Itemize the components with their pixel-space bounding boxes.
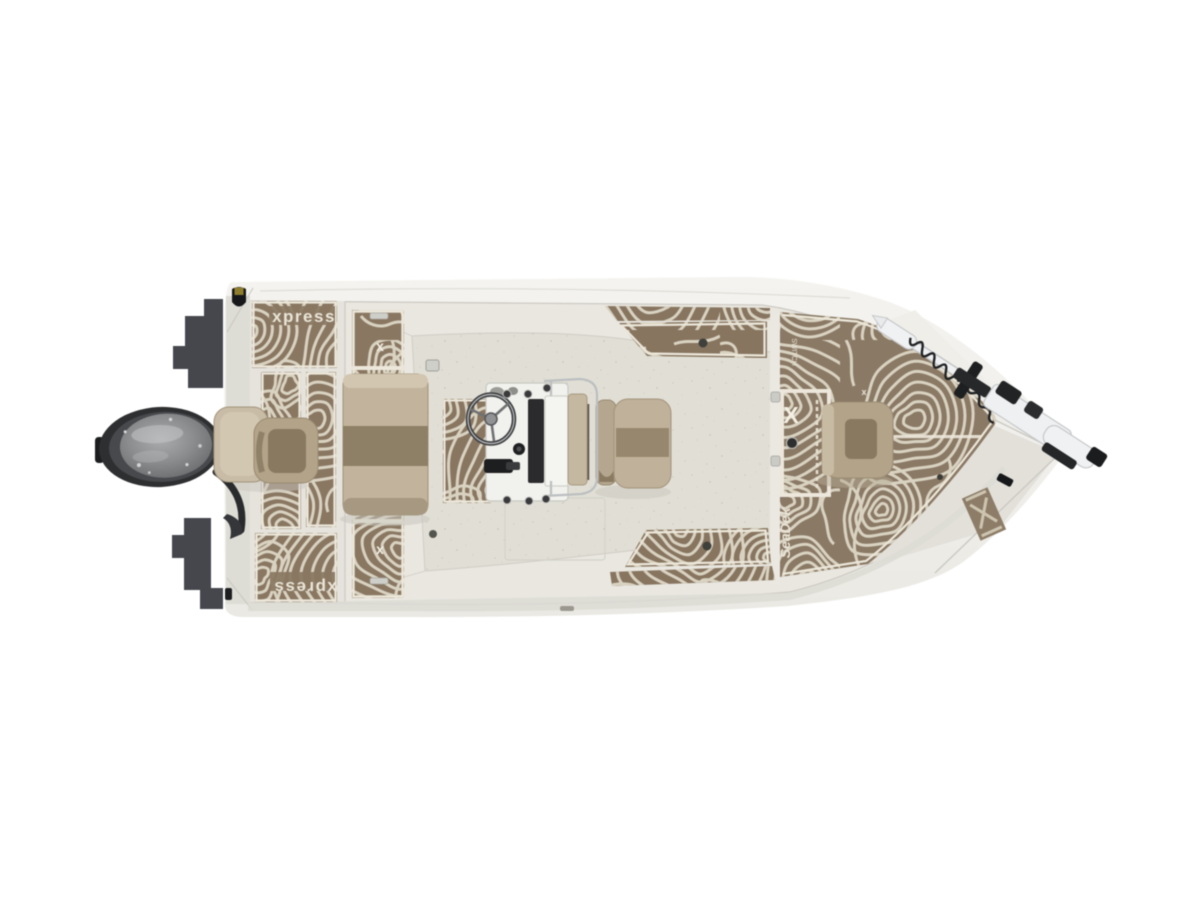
svg-text:SeaDek: SeaDek — [777, 506, 793, 558]
svg-text:x: x — [861, 387, 866, 397]
svg-text:xpress: xpress — [273, 578, 337, 597]
svg-text:xpress: xpress — [272, 307, 336, 326]
svg-text:x: x — [376, 338, 384, 354]
svg-text:X: X — [783, 402, 799, 428]
svg-text:SWITCH: SWITCH — [790, 338, 797, 366]
svg-text:x: x — [376, 541, 384, 557]
